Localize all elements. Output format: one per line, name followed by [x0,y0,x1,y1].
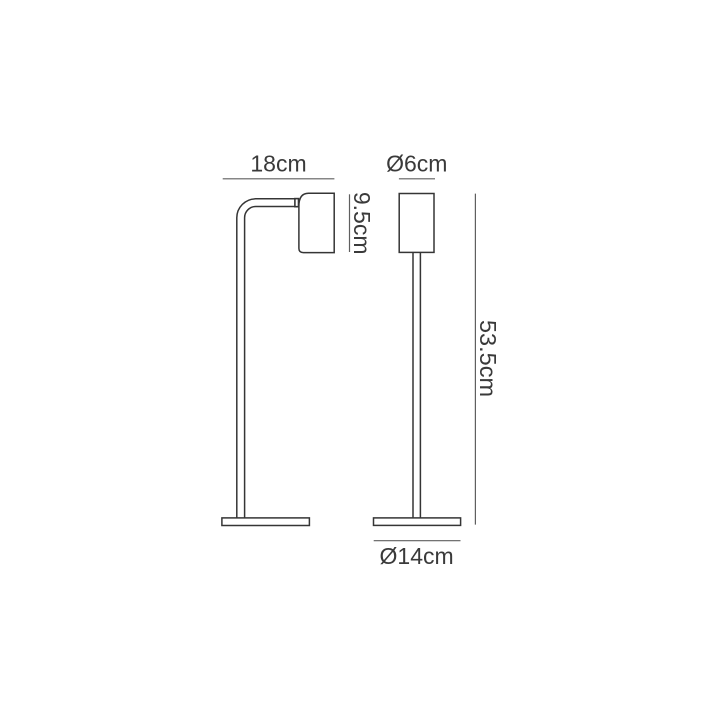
svg-text:Ø6cm: Ø6cm [386,151,447,177]
svg-text:Ø14cm: Ø14cm [380,543,454,569]
svg-text:9.5cm: 9.5cm [349,192,375,255]
svg-text:53.5cm: 53.5cm [475,320,501,397]
svg-text:18cm: 18cm [250,151,306,177]
